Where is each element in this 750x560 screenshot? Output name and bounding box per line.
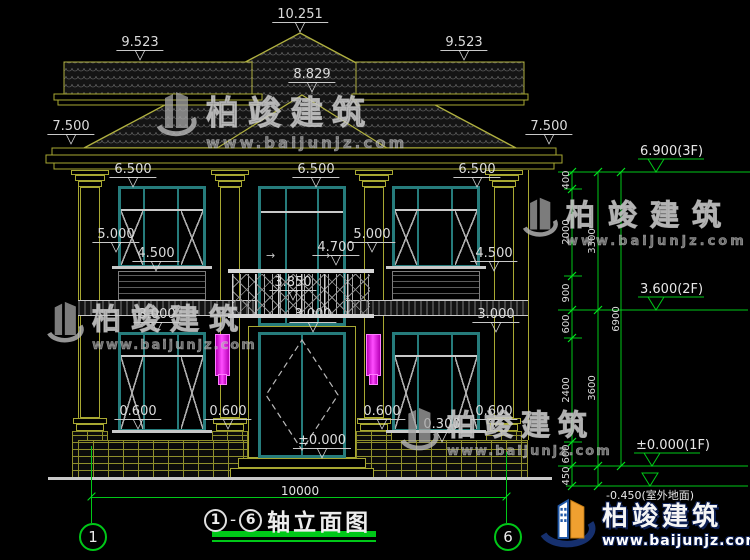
floor-level-label: 6.900(3F)	[640, 144, 703, 159]
balcony-top-rail	[228, 269, 374, 273]
elevation-marker: 3.850▽	[269, 276, 316, 303]
elevation-marker: 6.500▽	[109, 163, 156, 190]
triangle-down-icon: ▽	[295, 22, 306, 35]
floor-level-label: ±0.000(1F)	[636, 438, 710, 453]
dim-label: 450	[561, 466, 572, 485]
triangle-down-icon: ▽	[367, 242, 378, 255]
elevation-marker: 4.500▽	[132, 247, 179, 274]
dim-label: 600	[561, 314, 572, 333]
title-underline-thin	[212, 540, 376, 542]
window-transom	[261, 211, 343, 213]
dim-label: 900	[561, 283, 572, 302]
triangle-down-icon: ▽	[437, 432, 448, 445]
wall-right-edge	[528, 170, 529, 440]
triangle-down-icon: ▽	[111, 242, 122, 255]
title-axis-to: 6	[239, 509, 262, 532]
axis-bubble-1: 1	[79, 523, 107, 551]
triangle-down-icon: ▽	[377, 419, 388, 432]
brick-plinth-right	[356, 440, 528, 478]
dim-label: 3600	[587, 375, 598, 400]
elevation-marker: 0.600▽	[204, 405, 251, 432]
window-mullion	[417, 189, 419, 265]
brick-plinth-left	[78, 440, 248, 478]
dim-label: 2400	[561, 377, 572, 402]
dim-label: 2000	[561, 219, 572, 244]
triangle-down-icon: ▽	[472, 177, 483, 190]
triangle-down-icon: ▽	[66, 134, 77, 147]
dim-label: 400	[561, 170, 572, 189]
elevation-marker: 4.500▽	[470, 247, 517, 274]
elevation-marker: 7.500▽	[47, 120, 94, 147]
cad-elevation-canvas: → → 10.251▽ 9.523▽ 9.523▽ 8.829▽ 7	[0, 0, 750, 560]
wall-lamp-base	[369, 374, 378, 385]
elevation-marker: 0.600▽	[358, 405, 405, 432]
axis-grid-line	[91, 446, 92, 523]
window-mullion	[451, 189, 453, 265]
elevation-marker: 0.300▽	[418, 418, 465, 445]
elevation-marker: 0.600▽	[114, 405, 161, 432]
elevation-marker: 3.000▽	[472, 308, 519, 335]
floor-level-label: 3.600(2F)	[640, 282, 703, 297]
dim-label: 600	[561, 444, 572, 463]
pedestal-cap	[76, 424, 104, 431]
triangle-down-icon: ▽	[491, 322, 502, 335]
triangle-down-icon: ▽	[152, 322, 163, 335]
window-mullion	[177, 335, 179, 429]
elevation-marker: 4.700▽	[312, 241, 359, 268]
triangle-down-icon: ▽	[288, 290, 299, 303]
elevation-marker: 7.500▽	[525, 120, 572, 147]
axis-grid-line	[506, 452, 507, 523]
triangle-down-icon: ▽	[489, 261, 500, 274]
triangle-down-icon: ▽	[331, 255, 342, 268]
triangle-down-icon: ▽	[151, 261, 162, 274]
triangle-down-icon: ▽	[544, 134, 555, 147]
spandrel-panel	[392, 271, 480, 300]
drawing-title: 1 - 6 轴立面图	[204, 503, 371, 537]
triangle-down-icon: ▽	[128, 177, 139, 190]
triangle-down-icon: ▽	[317, 448, 328, 461]
slide-arrow-icon: →	[266, 251, 275, 261]
elevation-marker: 3.000▽	[289, 308, 336, 335]
elevation-marker: 9.523▽	[440, 36, 487, 63]
wall-lamp	[215, 334, 230, 376]
spandrel-panel	[118, 271, 206, 300]
window-x-pane	[395, 211, 417, 265]
triangle-down-icon: ▽	[307, 82, 318, 95]
brand-footer: 柏竣建筑 www.baijunjz.com	[536, 492, 750, 552]
elevation-marker: 10.251▽	[272, 8, 328, 35]
window-2f-right	[392, 186, 480, 268]
window-mullion	[417, 335, 419, 429]
elevation-marker: 3.000▽	[133, 308, 180, 335]
ground-line	[48, 477, 552, 480]
window-x-pane	[181, 211, 203, 265]
title-axis-from: 1	[204, 509, 227, 532]
triangle-down-icon: ▽	[459, 50, 470, 63]
wall-lamp-base	[218, 374, 227, 385]
title-label: 轴立面图	[267, 503, 371, 537]
triangle-down-icon: ▽	[311, 177, 322, 190]
elevation-marker: 6.500▽	[292, 163, 339, 190]
elevation-marker: 6.500▽	[453, 163, 500, 190]
dim-label: 6900	[611, 306, 622, 331]
title-dash: -	[230, 510, 236, 530]
elevation-marker: 0.600▽	[470, 405, 517, 432]
overall-dim-value: 10000	[272, 484, 328, 498]
triangle-down-icon: ▽	[135, 50, 146, 63]
brand-logo-icon	[536, 492, 598, 552]
wall-lamp	[366, 334, 381, 376]
dim-label: 3300	[587, 228, 598, 253]
elevation-marker: ±0.000▽	[293, 434, 351, 461]
elevation-marker: 8.829▽	[288, 68, 335, 95]
window-x-pane	[181, 357, 203, 429]
brand-url: www.baijunjz.com	[602, 533, 750, 549]
triangle-down-icon: ▽	[133, 419, 144, 432]
brand-name: 柏竣建筑	[602, 496, 750, 533]
window-mullion	[451, 335, 453, 429]
triangle-down-icon: ▽	[223, 419, 234, 432]
elevation-marker: 9.523▽	[116, 36, 163, 63]
axis-bubble-6: 6	[494, 523, 522, 551]
triangle-down-icon: ▽	[489, 419, 500, 432]
triangle-down-icon: ▽	[308, 322, 319, 335]
